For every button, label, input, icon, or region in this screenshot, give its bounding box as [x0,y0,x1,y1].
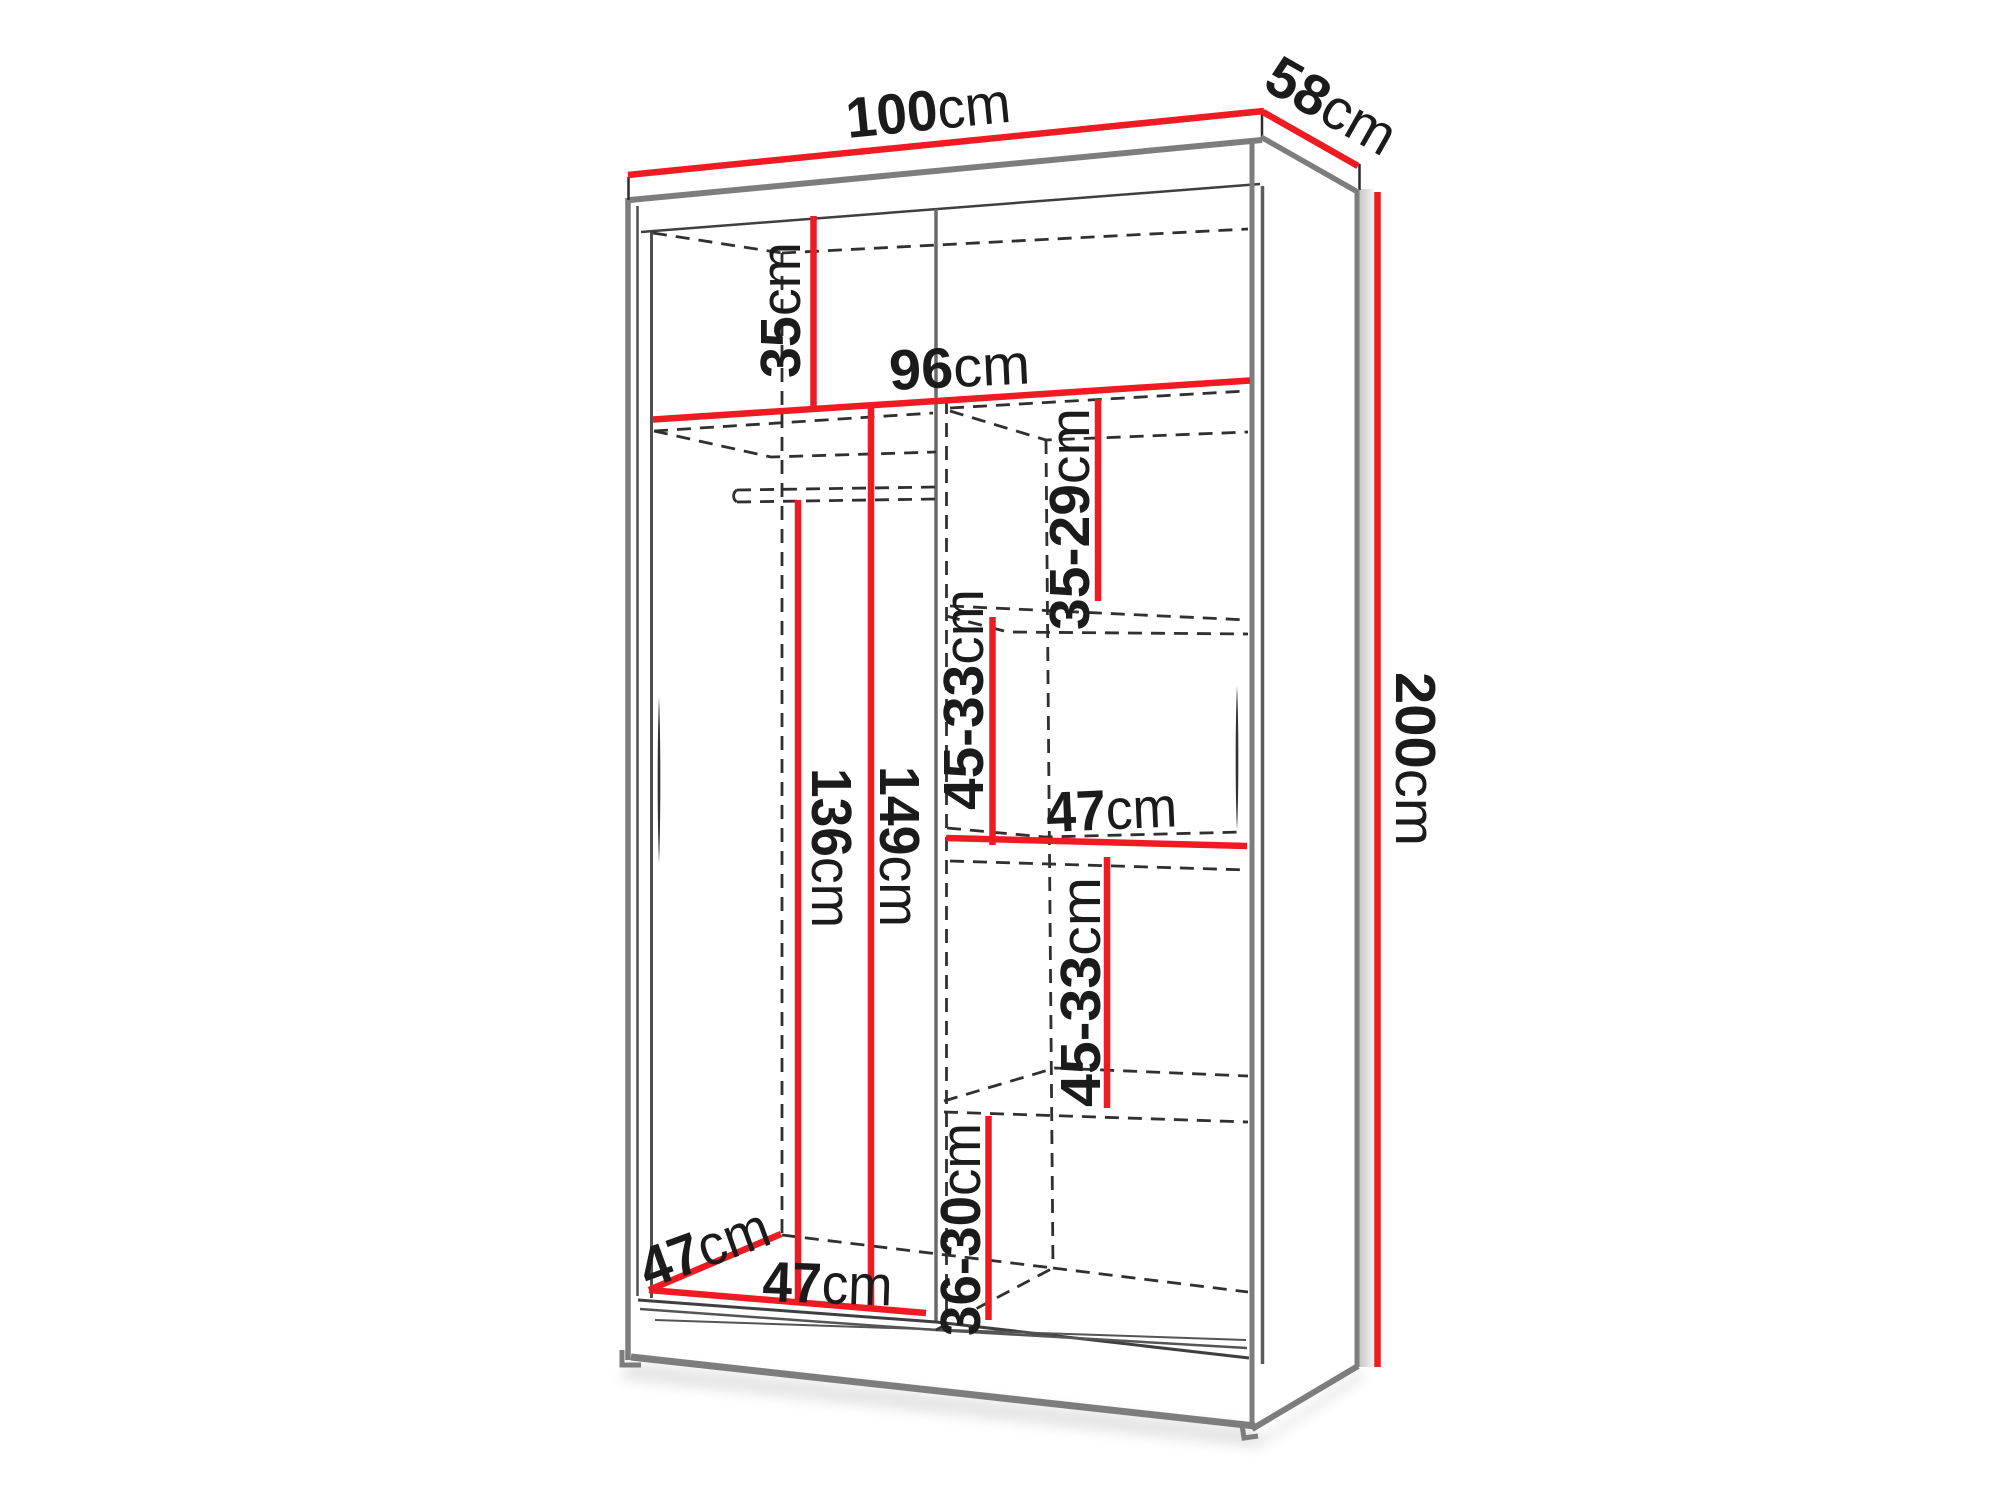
svg-text:200cm: 200cm [1383,672,1447,846]
svg-text:35cm: 35cm [749,242,813,378]
svg-text:149cm: 149cm [867,766,931,927]
svg-text:45-33cm: 45-33cm [932,589,996,810]
svg-text:47cm: 47cm [762,1250,894,1318]
svg-text:36-30cm: 36-30cm [929,1123,993,1336]
svg-text:136cm: 136cm [799,768,863,928]
svg-text:47cm: 47cm [1045,775,1179,845]
svg-text:45-33cm: 45-33cm [1049,877,1113,1107]
svg-text:35-29cm: 35-29cm [1038,408,1102,630]
svg-text:96cm: 96cm [888,332,1032,403]
